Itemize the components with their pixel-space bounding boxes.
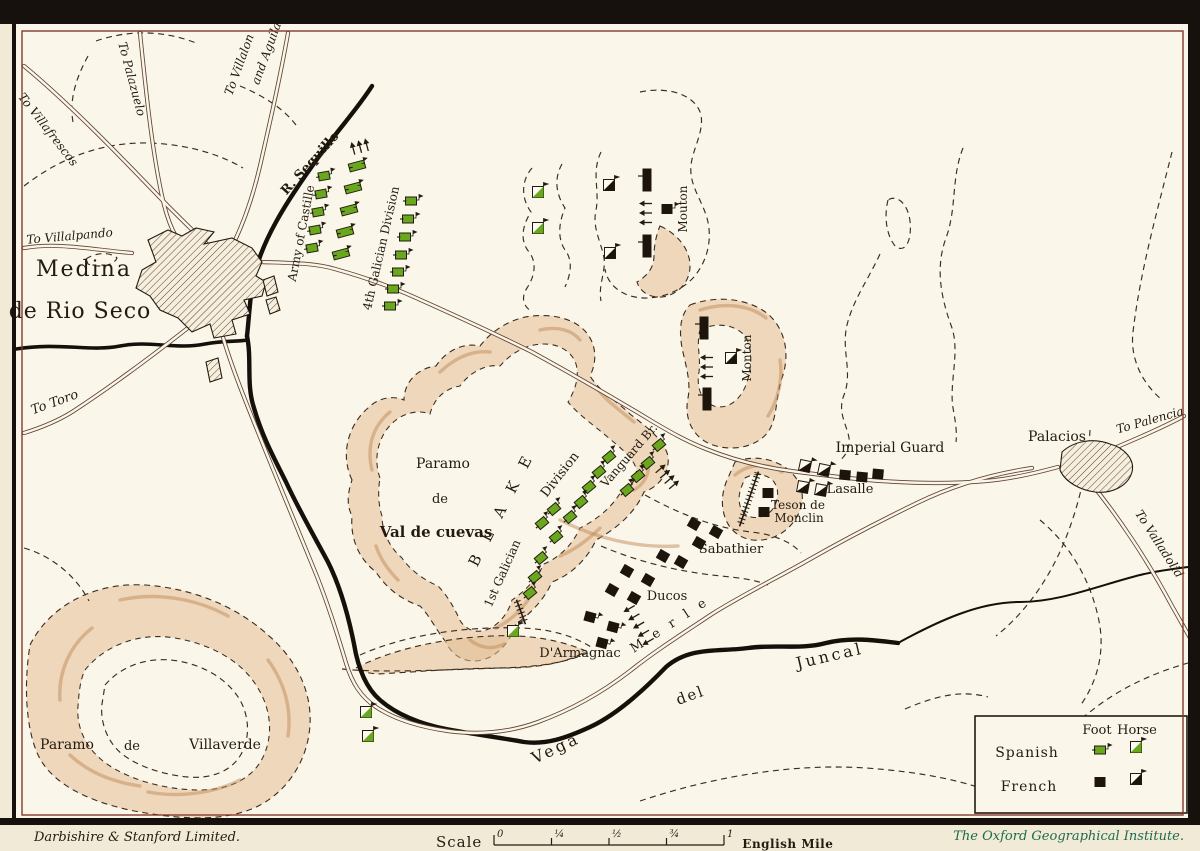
map-label: Villaverde bbox=[188, 737, 261, 753]
scale-bar: Scale 0¼½¾1 English Mile bbox=[436, 827, 833, 851]
scale-tick-label: 0 bbox=[497, 829, 504, 840]
scale-unit-label: English Mile bbox=[742, 837, 833, 851]
map-page: Foot Horse Spanish French To Villafresco… bbox=[0, 0, 1200, 851]
map-label: Monton bbox=[740, 334, 754, 381]
unit-french-foot bbox=[840, 470, 851, 480]
scale-tick-label: ¾ bbox=[670, 829, 680, 840]
scale-label: Scale bbox=[436, 833, 482, 851]
map-label: de bbox=[432, 492, 448, 507]
map-label: Sabathier bbox=[699, 542, 764, 557]
unit-french-foot bbox=[759, 508, 769, 517]
map-label: Val de cuevas bbox=[379, 523, 493, 541]
scale-tick-label: ½ bbox=[612, 829, 622, 840]
map-label: de Rio Seco bbox=[9, 299, 152, 324]
legend: Foot Horse Spanish French bbox=[975, 716, 1187, 813]
legend-col-horse: Horse bbox=[1117, 723, 1157, 738]
scale-tick-label: 1 bbox=[727, 829, 733, 840]
map-label: Palacios bbox=[1028, 429, 1086, 445]
map-label: D'Armagnac bbox=[539, 646, 620, 661]
legend-col-foot: Foot bbox=[1082, 723, 1112, 738]
battle-map-canvas: Foot Horse Spanish French To Villafresco… bbox=[0, 0, 1200, 851]
map-label: Paramo bbox=[416, 456, 470, 472]
legend-row-spanish: Spanish bbox=[995, 745, 1059, 761]
institute-credit: The Oxford Geographical Institute. bbox=[953, 829, 1184, 844]
map-label: Medina bbox=[36, 257, 132, 282]
map-label: Mouton bbox=[676, 185, 690, 232]
unit-french-foot bbox=[763, 489, 773, 498]
map-label: Teson de bbox=[771, 498, 825, 512]
scale-ruler: 0¼½¾1 bbox=[488, 827, 738, 851]
unit-french-foot bbox=[857, 472, 868, 482]
map-label: Lasalle bbox=[827, 482, 874, 497]
map-label: Imperial Guard bbox=[836, 440, 945, 456]
unit-french-foot bbox=[1095, 778, 1105, 787]
map-label: Monclin bbox=[774, 511, 824, 525]
publisher-credit: Darbishire & Stanford Limited. bbox=[34, 830, 240, 845]
legend-row-french: French bbox=[1001, 779, 1058, 795]
unit-french-foot bbox=[873, 469, 884, 479]
map-label: Paramo bbox=[40, 737, 94, 753]
map-label: de bbox=[124, 739, 140, 754]
scale-tick-label: ¼ bbox=[555, 829, 565, 840]
map-label: Ducos bbox=[647, 589, 688, 604]
